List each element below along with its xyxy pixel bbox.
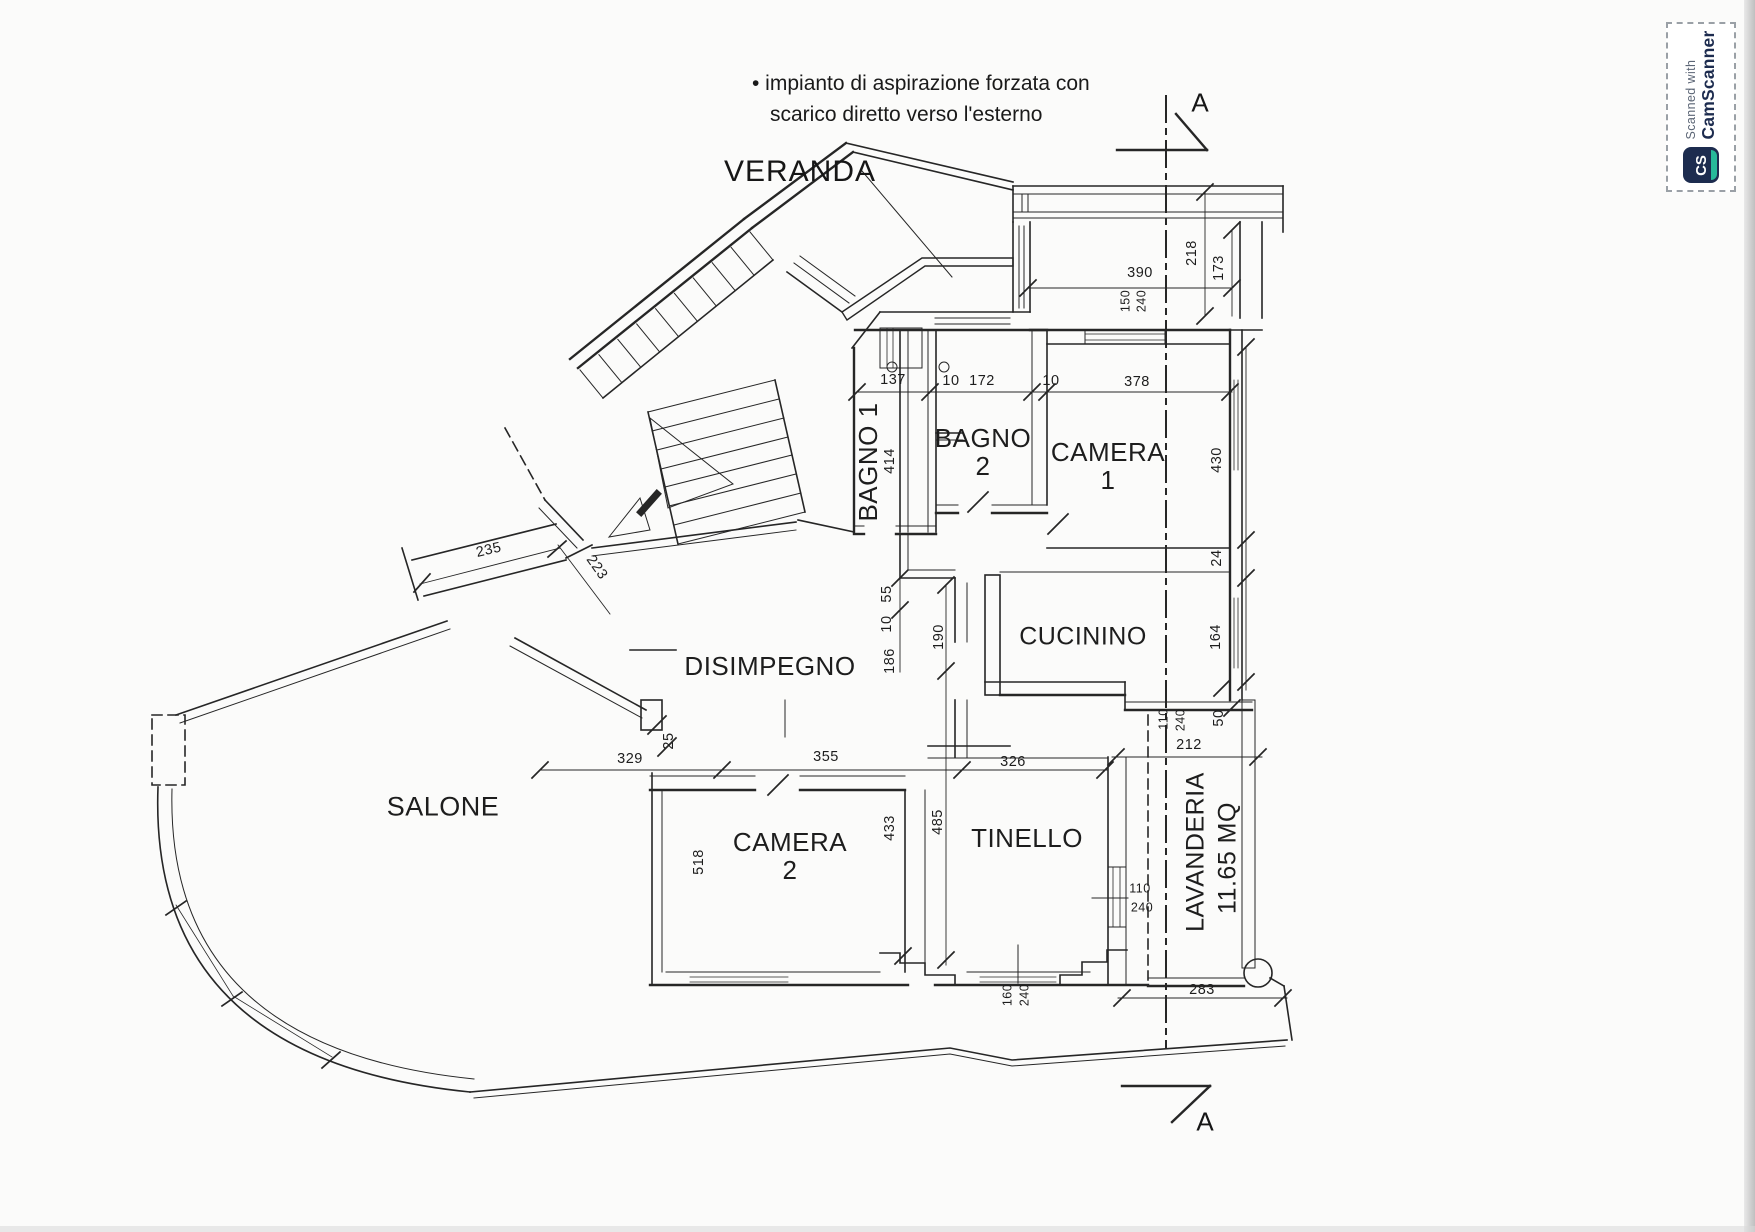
salone-walls [152,621,662,1092]
floor-plan-drawing [0,0,1755,1232]
vent-annotation: • impianto di aspirazione forzata con sc… [752,68,1090,130]
room-label-tinello: TINELLO [971,824,1083,852]
site-boundary [470,1040,1287,1098]
dimension-label: 172 [969,374,995,390]
camscanner-icon: CS [1683,148,1719,184]
camscanner-badge: CS Scanned with CamScanner [1666,22,1736,192]
dimension-label: 160 [1001,984,1015,1006]
dimension-label: 329 [617,752,643,768]
dimension-label: 283 [1189,983,1215,999]
dimension-label: 390 [1127,266,1153,282]
room-label-salone: SALONE [387,792,500,821]
stairs [580,232,805,544]
room-label-lavanderia: LAVANDERIA [1183,772,1210,932]
dimension-label: 518 [692,849,708,875]
dimension-label: 240 [1131,901,1153,915]
camscanner-brand: CamScanner [1698,31,1718,140]
section-marker-top: A [1191,88,1208,119]
dimension-label: 326 [1000,755,1026,771]
dimension-label: 212 [1176,738,1202,754]
scanned-floor-plan-page: • impianto di aspirazione forzata con sc… [0,0,1755,1232]
section-marker-bottom: A [1196,1107,1213,1138]
dimension-label: 55 [880,585,896,602]
dimension-label: 25 [662,732,678,749]
dimension-label: 10 [880,615,896,632]
room-label-bagno-1: BAGNO 1 [854,402,882,521]
dimension-label: 190 [932,624,948,650]
dimension-label: 485 [931,809,947,835]
dimension-label: 430 [1210,447,1226,473]
dimension-label: 50 [1212,709,1228,726]
dimension-label: 137 [880,373,906,389]
veranda-label: VERANDA [724,155,876,189]
dimension-label: 24 [1210,549,1226,566]
room-label-camera-2: CAMERA 2 [733,828,847,884]
camscanner-badge-inner: CS Scanned with CamScanner [1673,29,1729,185]
room-label-cucinino: CUCININO [1019,624,1147,651]
dimension-label: 218 [1185,240,1201,266]
dimension-label: 355 [813,750,839,766]
veranda-walls [787,222,1047,372]
entrance-arrow-icon [609,494,657,537]
dimension-label: 433 [883,815,899,841]
vent-annotation-line1: • impianto di aspirazione forzata con [752,68,1090,99]
vent-annotation-line2: scarico diretto verso l'esterno [770,99,1090,130]
room-label-lavanderia-area: 11.65 MQ [1215,802,1242,914]
dimension-label: 164 [1209,624,1225,650]
dimension-label: 240 [1174,709,1188,731]
dimension-label: 414 [883,448,899,474]
dimension-label: 378 [1124,375,1150,391]
room-label-camera-1: CAMERA 1 [1051,438,1165,494]
room-label-bagno-2: BAGNO 2 [935,424,1031,480]
dimension-label: 110 [1129,882,1150,896]
dimension-label: 240 [1018,984,1032,1006]
room-label-disimpegno: DISIMPEGNO [684,652,855,680]
dimension-lines [414,184,1291,1006]
dimension-label: 10 [942,374,959,390]
camscanner-text: Scanned with CamScanner [1684,31,1719,140]
scan-edge-bottom [0,1226,1755,1232]
dimension-label: 186 [883,648,899,674]
dimension-label: 110 [1157,708,1171,729]
lower-walls [650,790,1148,985]
dimension-label: 240 [1135,290,1149,312]
dimension-label: 10 [1042,374,1059,390]
dimension-label: 173 [1212,255,1228,281]
camscanner-subtext: Scanned with [1684,31,1698,140]
scan-edge [1744,0,1755,1232]
dimension-label: 150 [1119,290,1133,312]
